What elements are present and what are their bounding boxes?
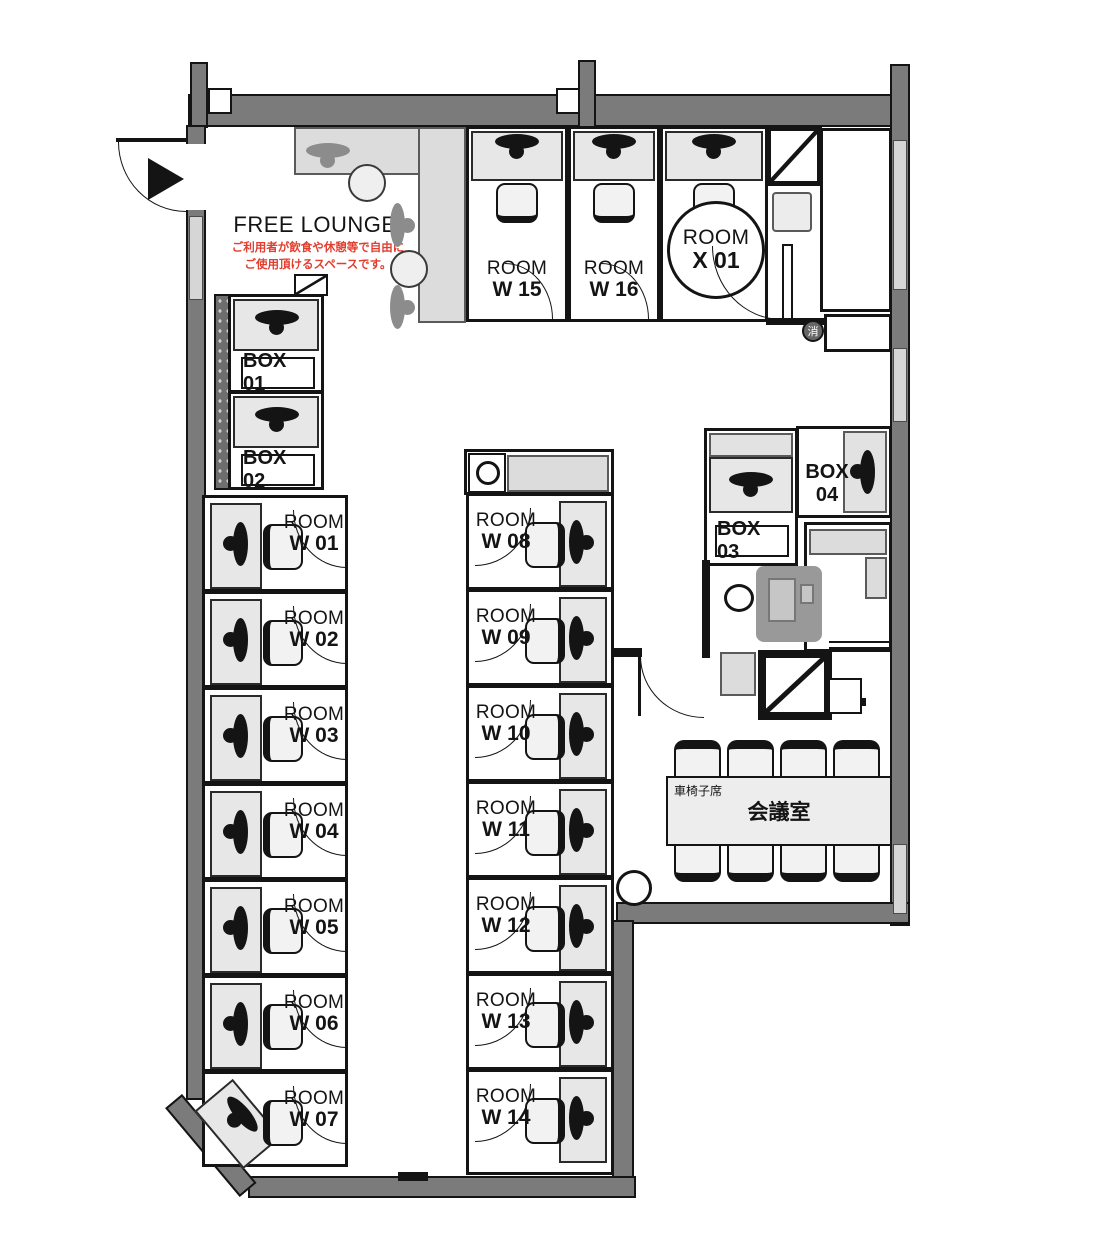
person-icon	[223, 906, 249, 950]
person-icon	[389, 203, 415, 247]
printer-tray	[768, 578, 796, 622]
room-w09: ROOMW 09	[466, 589, 614, 686]
person-icon	[568, 904, 594, 948]
cabinet	[720, 652, 756, 696]
room-w07: ROOMW 07	[202, 1071, 348, 1167]
person-icon	[850, 450, 876, 494]
person-icon	[223, 1002, 249, 1046]
person-icon	[568, 1000, 594, 1044]
room-w16: ROOMW 16	[568, 126, 660, 322]
lounge-table	[390, 250, 428, 288]
room-w05: ROOMW 05	[202, 879, 348, 976]
entrance-arrow-icon	[148, 158, 184, 200]
stool	[724, 584, 754, 612]
room-w12: ROOMW 12	[466, 877, 614, 974]
person-icon	[568, 520, 594, 564]
room-w11: ROOMW 11	[466, 781, 614, 878]
wall-meeting-bottom	[616, 902, 910, 924]
box-label: BOX 02	[241, 454, 315, 486]
pillar-top-mid	[578, 60, 596, 128]
floor-plan: FREE LOUNGE ご利用者が飲食や休憩等で自由に ご使用頂けるスペースです…	[0, 0, 1101, 1260]
room-w10: ROOMW 10	[466, 685, 614, 782]
person-icon	[568, 616, 594, 660]
sink-basin-icon	[476, 461, 500, 485]
window-right-2	[893, 348, 907, 422]
room-w14: ROOMW 14	[466, 1069, 614, 1175]
wall-bottom	[248, 1176, 636, 1198]
door-arc	[475, 604, 531, 662]
corner-shaft	[294, 274, 328, 296]
box-02: BOX 02	[228, 391, 324, 490]
floor-box	[828, 678, 862, 714]
person-icon	[692, 133, 736, 159]
floor-box-notch	[860, 698, 866, 706]
room-w08: ROOMW 08	[466, 493, 614, 590]
meeting-door-arc	[640, 656, 704, 718]
door-arc	[475, 1084, 531, 1142]
person-icon	[568, 808, 594, 852]
fire-extinguisher-marker: 消	[802, 320, 824, 342]
floor-box-notch	[824, 688, 830, 696]
wheelchair-seat-note: 車椅子席	[674, 782, 722, 799]
box-label: BOX 03	[715, 525, 789, 557]
person-icon	[568, 712, 594, 756]
box-03: BOX 03	[704, 428, 798, 566]
lounge-title: FREE LOUNGE	[230, 212, 400, 238]
window-left	[189, 216, 203, 300]
right-room-upper	[820, 128, 892, 312]
box-01: BOX 01	[228, 294, 324, 393]
panel	[865, 557, 887, 599]
chair	[593, 183, 635, 223]
printer-panel	[800, 584, 814, 604]
pantry-counter	[464, 449, 614, 495]
room-w04: ROOMW 04	[202, 783, 348, 880]
person-icon	[223, 522, 249, 566]
person-icon	[495, 133, 539, 159]
box-label: BOX 04	[801, 461, 853, 507]
meeting-room-label: 会議室	[748, 796, 811, 826]
entrance-opening	[184, 144, 208, 210]
person-icon	[592, 133, 636, 159]
window-right-1	[893, 140, 907, 290]
door-arc	[475, 988, 531, 1046]
room-w15: ROOMW 15	[466, 126, 568, 322]
person-icon	[306, 142, 350, 168]
box-04: BOX 04	[796, 426, 892, 518]
pillar-box-left	[208, 88, 232, 114]
room-w13: ROOMW 13	[466, 973, 614, 1070]
person-icon	[389, 285, 415, 329]
lounge-note: ご利用者が飲食や休憩等で自由に ご使用頂けるスペースです。	[218, 240, 418, 275]
person-icon	[255, 406, 299, 432]
person-icon	[255, 309, 299, 335]
lounge-counter-right	[418, 127, 466, 323]
printer	[756, 566, 822, 642]
door-arc	[475, 700, 531, 758]
person-icon	[729, 471, 773, 497]
shelf	[709, 433, 793, 457]
trash-bin	[616, 870, 652, 906]
shelf	[772, 192, 812, 232]
door-arc	[475, 892, 531, 950]
person-icon	[223, 810, 249, 854]
box-label: BOX 01	[241, 357, 315, 389]
room-w02: ROOMW 02	[202, 591, 348, 688]
wall-lower-right	[612, 920, 634, 1180]
shelf	[809, 529, 887, 555]
sliding-door	[829, 641, 889, 649]
person-icon	[568, 1096, 594, 1140]
lounge-table	[348, 164, 386, 202]
chair	[496, 183, 538, 223]
room-w01: ROOMW 01	[202, 495, 348, 592]
door-arc	[475, 508, 531, 566]
counter-top	[507, 455, 609, 492]
meeting-table: 車椅子席 会議室	[666, 776, 892, 846]
room-w03: ROOMW 03	[202, 687, 348, 784]
duct-shaft	[766, 126, 822, 186]
person-icon	[223, 618, 249, 662]
wall-top	[188, 94, 910, 127]
window-right-3	[893, 844, 907, 914]
door-arc	[475, 796, 531, 854]
right-room-small	[824, 314, 892, 352]
pillar-box-mid	[556, 88, 580, 114]
room-w06: ROOMW 06	[202, 975, 348, 1072]
sink-unit	[468, 453, 506, 493]
bottom-door-marker	[398, 1172, 428, 1181]
pillar-top-left	[190, 62, 208, 128]
wall-segment	[702, 560, 710, 658]
person-icon	[223, 714, 249, 758]
duct-shaft	[758, 650, 832, 720]
x01-door-leaf	[782, 244, 793, 321]
